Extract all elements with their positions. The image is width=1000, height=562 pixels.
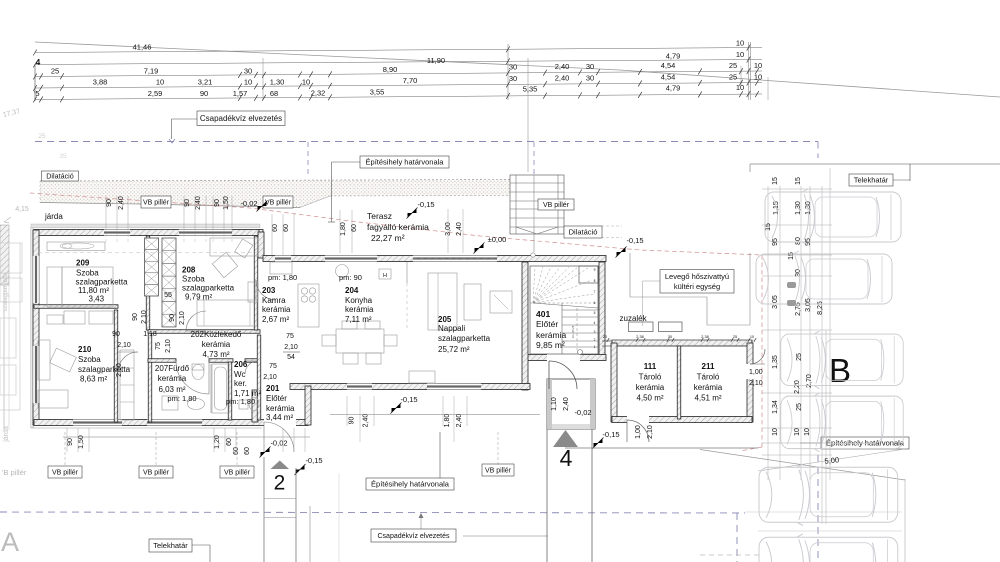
svg-text:3,05: 3,05 — [772, 295, 779, 309]
svg-text:5,35: 5,35 — [523, 85, 538, 94]
svg-text:75: 75 — [286, 333, 294, 340]
svg-text:55: 55 — [164, 292, 172, 299]
svg-text:1,35: 1,35 — [772, 355, 779, 369]
svg-text:2,20: 2,20 — [794, 380, 801, 394]
svg-text:3,05: 3,05 — [805, 298, 812, 312]
svg-text:2,10: 2,10 — [263, 374, 277, 381]
svg-text:VB pillér: VB pillér — [265, 200, 292, 207]
svg-text:szalagparketta: szalagparketta — [3, 272, 9, 312]
svg-text:Csapadékvíz elvezetés: Csapadékvíz elvezetés — [378, 533, 450, 540]
svg-text:VB pillér: VB pillér — [52, 470, 79, 477]
svg-text:60: 60 — [233, 447, 240, 455]
svg-text:209: 209 — [76, 259, 90, 268]
svg-text:1,18: 1,18 — [143, 331, 157, 338]
svg-text:30: 30 — [244, 67, 252, 76]
svg-text:'B pillér: 'B pillér — [2, 468, 27, 477]
svg-text:VB pillér: VB pillér — [543, 202, 570, 209]
svg-text:3,88: 3,88 — [93, 78, 108, 87]
svg-text:8,63 m²: 8,63 m² — [80, 375, 107, 384]
svg-text:9: 9 — [594, 268, 596, 272]
svg-text:206: 206 — [234, 360, 248, 369]
svg-text:10: 10 — [736, 39, 744, 48]
svg-text:Tároló: Tároló — [639, 373, 662, 382]
svg-text:4,50 m²: 4,50 m² — [636, 394, 663, 403]
svg-text:-0,15: -0,15 — [400, 395, 417, 404]
svg-text:2,40: 2,40 — [363, 414, 370, 428]
svg-text:90: 90 — [184, 199, 191, 207]
svg-text:2,10: 2,10 — [284, 344, 298, 351]
svg-text:Építésihely határvonala: Építésihely határvonala — [371, 480, 450, 489]
svg-text:30: 30 — [586, 74, 594, 83]
svg-text:4,79: 4,79 — [666, 52, 681, 61]
svg-text:8,90: 8,90 — [383, 65, 398, 74]
svg-text:zuzalék: zuzalék — [620, 314, 648, 323]
svg-text:25: 25 — [51, 67, 59, 76]
svg-text:-0,15: -0,15 — [305, 456, 322, 465]
svg-text:Telekhatár: Telekhatár — [854, 176, 889, 185]
svg-text:60: 60 — [244, 447, 251, 455]
svg-text:szalagparketta: szalagparketta — [438, 334, 491, 343]
svg-text:2,40: 2,40 — [456, 222, 463, 236]
svg-text:pm: 1,80: pm: 1,80 — [167, 394, 196, 403]
svg-text:8,25: 8,25 — [817, 301, 824, 315]
svg-text:8: 8 — [594, 279, 596, 283]
svg-text:-0,15: -0,15 — [417, 200, 434, 209]
svg-text:204: 204 — [345, 286, 359, 295]
svg-text:Szoba: Szoba — [76, 269, 99, 278]
svg-text:1: 1 — [594, 345, 596, 349]
svg-text:3,21: 3,21 — [198, 78, 213, 87]
svg-text:3,55: 3,55 — [370, 88, 385, 97]
svg-text:kerámia: kerámia — [262, 305, 291, 314]
svg-text:2,40: 2,40 — [555, 62, 570, 71]
svg-text:10: 10 — [754, 73, 762, 82]
svg-text:Konyha: Konyha — [345, 296, 373, 305]
svg-text:3: 3 — [594, 330, 596, 334]
svg-text:10: 10 — [736, 83, 744, 92]
svg-text:kerámia: kerámia — [636, 383, 665, 392]
svg-text:Nappali: Nappali — [438, 324, 465, 333]
svg-text:11,90: 11,90 — [427, 56, 445, 65]
svg-text:41,46: 41,46 — [133, 43, 152, 52]
svg-text:25: 25 — [796, 353, 803, 361]
svg-text:75: 75 — [269, 363, 277, 370]
svg-text:5: 5 — [594, 311, 596, 315]
svg-text:pm: 1,80: pm: 1,80 — [268, 273, 297, 282]
svg-text:2,59: 2,59 — [148, 89, 163, 98]
svg-text:210: 210 — [78, 345, 92, 354]
svg-text:25: 25 — [729, 61, 737, 70]
svg-text:25: 25 — [733, 335, 737, 339]
svg-text:4: 4 — [560, 445, 573, 471]
svg-text:90: 90 — [112, 331, 120, 338]
svg-text:10: 10 — [302, 78, 310, 87]
svg-text:Telekhatár: Telekhatár — [153, 541, 188, 550]
svg-text:10: 10 — [772, 428, 779, 436]
svg-text:1,00: 1,00 — [749, 369, 763, 376]
svg-text:201: 201 — [266, 384, 280, 393]
svg-text:10: 10 — [794, 428, 801, 436]
svg-text:30: 30 — [509, 74, 517, 83]
svg-text:-0,15: -0,15 — [626, 236, 643, 245]
svg-text:Wc: Wc — [234, 370, 246, 379]
svg-text:90: 90 — [349, 417, 356, 425]
svg-text:4,15: 4,15 — [15, 206, 29, 213]
svg-text:90: 90 — [200, 89, 208, 98]
svg-text:H: H — [383, 273, 387, 279]
svg-text:208: 208 — [182, 266, 196, 275]
svg-text:B: B — [829, 352, 851, 389]
svg-text:25: 25 — [38, 133, 46, 140]
svg-text:2: 2 — [274, 472, 286, 495]
svg-text:2,10: 2,10 — [179, 311, 186, 325]
svg-text:2,40: 2,40 — [456, 414, 463, 428]
svg-text:Csapadékvíz elvezetés: Csapadékvíz elvezetés — [200, 114, 282, 123]
svg-text:4,51 m²: 4,51 m² — [694, 394, 721, 403]
svg-text:±0,00: ±0,00 — [488, 235, 507, 244]
svg-text:Dilatáció: Dilatáció — [569, 228, 598, 237]
svg-text:10: 10 — [736, 50, 744, 59]
svg-text:90: 90 — [132, 313, 139, 321]
svg-text:10: 10 — [754, 61, 762, 70]
svg-text:25,72 m²: 25,72 m² — [438, 345, 470, 354]
svg-text:járda: járda — [44, 212, 63, 221]
svg-text:kültéri egység: kültéri egység — [674, 282, 720, 291]
svg-text:2,10: 2,10 — [647, 425, 654, 439]
svg-text:2,38: 2,38 — [636, 335, 643, 339]
svg-text:25: 25 — [729, 73, 737, 82]
svg-text:kerámia: kerámia — [536, 330, 567, 340]
svg-text:4: 4 — [36, 58, 41, 67]
svg-text:30: 30 — [586, 62, 594, 71]
svg-text:1,00: 1,00 — [635, 425, 642, 439]
svg-text:2,38: 2,38 — [701, 335, 708, 339]
svg-text:10: 10 — [156, 78, 164, 87]
svg-text:4,54: 4,54 — [661, 73, 676, 82]
svg-text:4,73 m²: 4,73 m² — [202, 350, 229, 359]
svg-text:-0,02: -0,02 — [270, 439, 287, 448]
svg-text:202Közlekedő: 202Közlekedő — [191, 330, 242, 339]
svg-text:35: 35 — [59, 153, 67, 160]
svg-text:20: 20 — [603, 335, 607, 339]
svg-text:-0,02: -0,02 — [574, 408, 591, 417]
svg-text:2,40: 2,40 — [195, 196, 202, 210]
svg-text:68: 68 — [270, 89, 278, 98]
svg-text:60: 60 — [226, 438, 233, 446]
svg-text:Előtér: Előtér — [536, 319, 558, 329]
svg-text:kerámia: kerámia — [345, 305, 374, 314]
svg-text:1,57: 1,57 — [233, 89, 248, 98]
svg-text:10: 10 — [244, 78, 252, 87]
svg-text:Kamra: Kamra — [262, 296, 286, 305]
svg-text:Előtér: Előtér — [266, 394, 287, 403]
svg-text:15: 15 — [795, 177, 802, 185]
svg-text:A: A — [1, 527, 19, 557]
svg-text:90: 90 — [106, 199, 113, 207]
svg-text:-0,15: -0,15 — [602, 430, 619, 439]
svg-text:kerámia: kerámia — [694, 383, 723, 392]
svg-text:Levegő hőszivattyú: Levegő hőszivattyú — [665, 272, 729, 281]
svg-text:25: 25 — [796, 403, 803, 411]
svg-text:7,19: 7,19 — [144, 67, 159, 76]
svg-text:Építésihely határvonala: Építésihely határvonala — [366, 158, 445, 167]
svg-text:2,67 m²: 2,67 m² — [262, 315, 289, 324]
svg-text:90: 90 — [67, 438, 74, 446]
svg-text:VB pillér: VB pillér — [143, 470, 170, 477]
svg-text:szalagparketta: szalagparketta — [182, 284, 235, 293]
svg-text:Terasz: Terasz — [367, 211, 392, 221]
svg-text:-0,02: -0,02 — [240, 199, 257, 208]
svg-text:111: 111 — [644, 362, 657, 371]
svg-text:60: 60 — [283, 224, 290, 232]
svg-text:1,80: 1,80 — [444, 414, 451, 428]
svg-text:6,03 m²: 6,03 m² — [158, 385, 185, 394]
svg-text:4,54: 4,54 — [661, 61, 676, 70]
svg-text:75: 75 — [155, 342, 162, 350]
svg-text:Szoba: Szoba — [78, 355, 101, 364]
svg-text:10: 10 — [804, 428, 811, 436]
svg-text:pm: 90: pm: 90 — [339, 273, 362, 282]
svg-text:2,32: 2,32 — [311, 89, 326, 98]
svg-text:9,79 m²: 9,79 m² — [185, 293, 212, 302]
svg-text:60: 60 — [272, 224, 279, 232]
svg-text:fagyálló kerámia: fagyálló kerámia — [367, 222, 429, 232]
svg-text:2,10: 2,10 — [117, 342, 131, 349]
svg-text:22,27 m²: 22,27 m² — [371, 233, 405, 243]
svg-text:30: 30 — [509, 63, 517, 72]
svg-text:15: 15 — [765, 223, 772, 231]
svg-text:pm: 1,80: pm: 1,80 — [226, 397, 255, 406]
svg-text:2,10: 2,10 — [165, 339, 172, 353]
svg-text:kerámia: kerámia — [158, 374, 187, 383]
svg-text:5,00: 5,00 — [824, 455, 839, 465]
svg-text:ker.: ker. — [234, 379, 247, 388]
svg-text:6: 6 — [594, 301, 596, 305]
svg-text:3,43: 3,43 — [89, 295, 105, 304]
svg-text:9,85 m²: 9,85 m² — [536, 340, 565, 350]
svg-text:90: 90 — [169, 314, 176, 322]
svg-text:4: 4 — [594, 321, 596, 325]
svg-text:207Fürdő: 207Fürdő — [155, 364, 190, 373]
svg-text:2,40: 2,40 — [563, 397, 570, 411]
svg-text:7,70: 7,70 — [403, 76, 418, 85]
svg-text:3,44 m²: 3,44 m² — [266, 413, 293, 422]
svg-text:1,30: 1,30 — [270, 78, 285, 87]
svg-text:54: 54 — [287, 354, 295, 361]
svg-text:3,00: 3,00 — [445, 222, 452, 236]
svg-text:2: 2 — [594, 338, 596, 342]
svg-text:205: 205 — [438, 315, 452, 324]
svg-text:Tároló: Tároló — [697, 373, 720, 382]
svg-text:2,10: 2,10 — [141, 310, 148, 324]
svg-text:VB pillér: VB pillér — [485, 468, 512, 475]
svg-text:15: 15 — [772, 177, 779, 185]
svg-text:kerámia: kerámia — [202, 340, 231, 349]
svg-text:VB pillér: VB pillér — [143, 200, 170, 207]
svg-text:10: 10 — [750, 335, 754, 339]
svg-text:2,40: 2,40 — [555, 74, 570, 83]
svg-text:'5: '5 — [34, 89, 40, 98]
svg-text:1,30: 1,30 — [795, 201, 802, 215]
svg-text:4,79: 4,79 — [666, 84, 681, 93]
svg-text:járda: járda — [3, 426, 10, 443]
svg-text:2,10: 2,10 — [749, 380, 763, 387]
svg-text:401: 401 — [536, 309, 550, 319]
svg-text:1,34: 1,34 — [772, 400, 779, 414]
svg-text:211: 211 — [702, 362, 715, 371]
svg-text:kerámia: kerámia — [266, 404, 295, 413]
svg-text:80: 80 — [795, 237, 802, 245]
svg-text:2,50: 2,50 — [116, 363, 123, 377]
svg-text:203: 203 — [262, 286, 276, 295]
svg-text:30: 30 — [668, 335, 672, 339]
svg-text:1,10: 1,10 — [551, 397, 558, 411]
svg-text:VB pillér: VB pillér — [224, 470, 251, 477]
svg-text:1,80: 1,80 — [340, 222, 347, 236]
svg-text:2,40: 2,40 — [118, 196, 125, 210]
svg-text:16+18=28: 16+18=28 — [571, 325, 575, 338]
svg-text:Szoba: Szoba — [182, 275, 205, 284]
svg-text:Dilatáció: Dilatáció — [46, 172, 74, 181]
svg-text:90: 90 — [214, 199, 221, 207]
svg-text:7: 7 — [594, 290, 596, 294]
svg-text:7,11 m²: 7,11 m² — [345, 315, 372, 324]
